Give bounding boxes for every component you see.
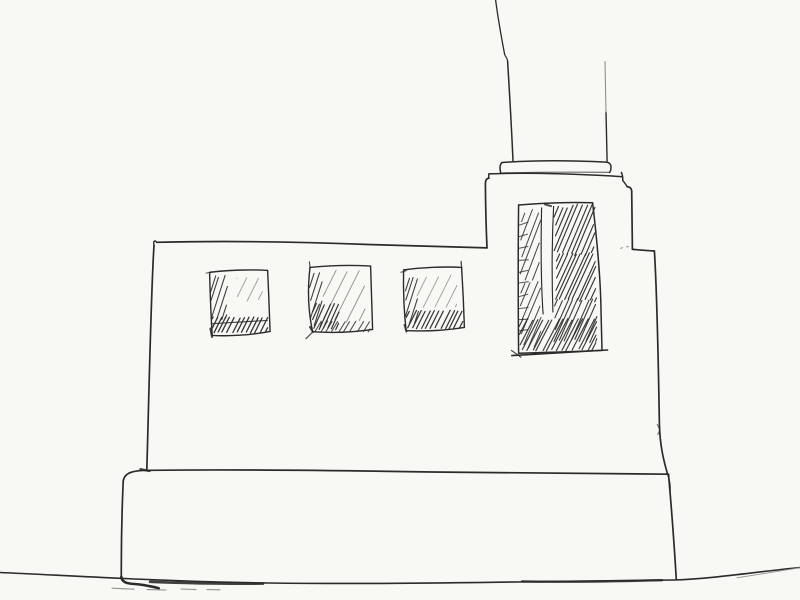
sketch-canvas bbox=[0, 0, 800, 600]
window2-top-tick bbox=[309, 262, 310, 269]
window3-right-tick bbox=[461, 261, 462, 268]
sketch-page: Hand-drawn pen sketch of a flat-roofed i… bbox=[0, 0, 800, 600]
paper-background bbox=[0, 0, 800, 600]
